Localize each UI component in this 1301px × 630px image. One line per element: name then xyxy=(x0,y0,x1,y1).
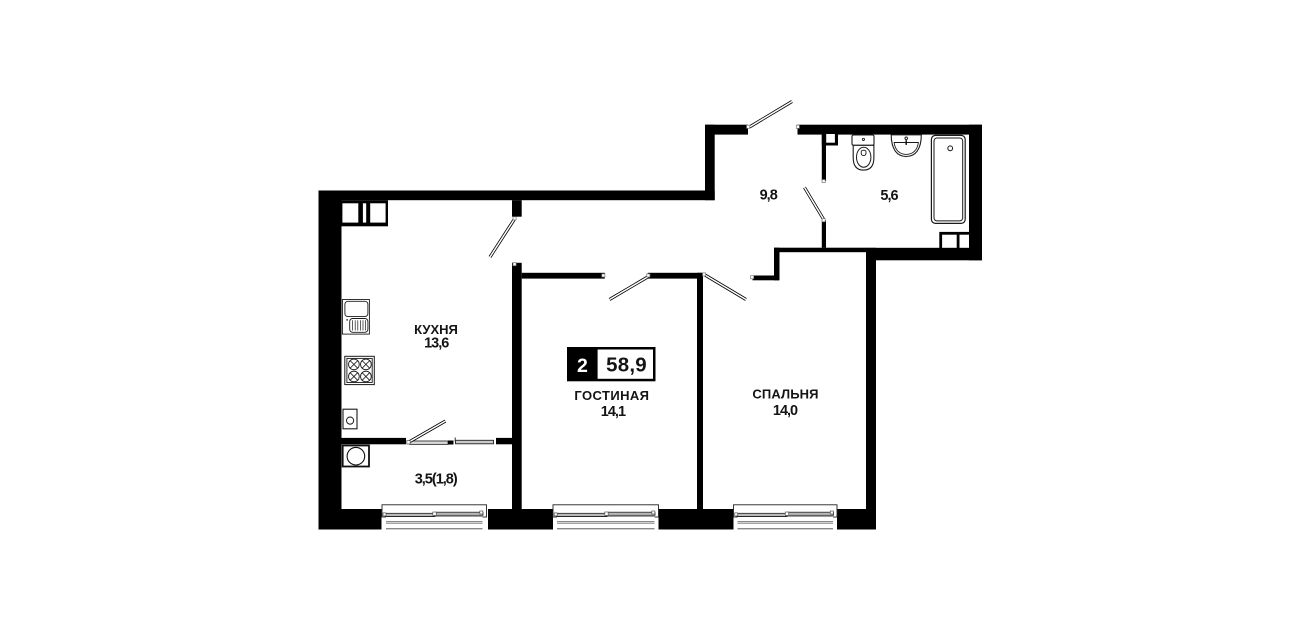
svg-text:14,1: 14,1 xyxy=(601,404,626,420)
svg-text:9,8: 9,8 xyxy=(760,188,778,204)
svg-text:2: 2 xyxy=(577,355,588,377)
svg-text:СПАЛЬНЯ: СПАЛЬНЯ xyxy=(752,387,818,402)
svg-text:58,9: 58,9 xyxy=(606,354,647,377)
svg-text:3,5(1,8): 3,5(1,8) xyxy=(415,472,458,488)
svg-text:13,6: 13,6 xyxy=(424,335,449,351)
svg-text:5,6: 5,6 xyxy=(880,188,898,204)
svg-text:ГОСТИНАЯ: ГОСТИНАЯ xyxy=(574,388,649,403)
svg-text:14,0: 14,0 xyxy=(773,403,798,419)
